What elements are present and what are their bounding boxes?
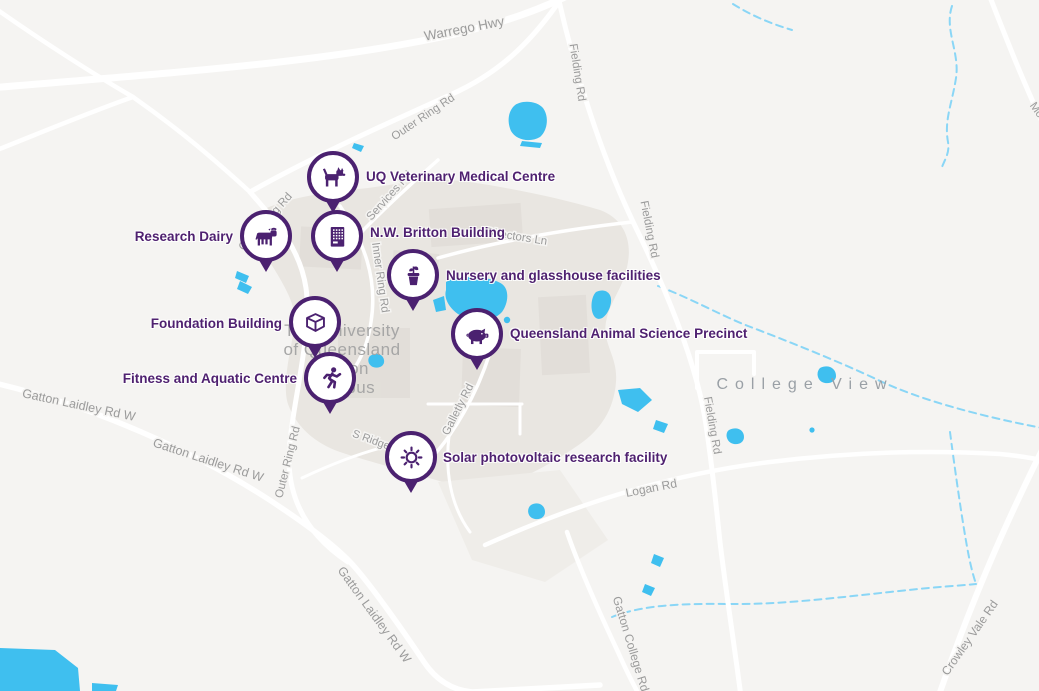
- marker-fitness-and-aquatic-centre[interactable]: [304, 352, 356, 404]
- marker-label-solar-photovoltaic-research-facility: Solar photovoltaic research facility: [443, 449, 667, 467]
- sun-icon: [398, 444, 425, 471]
- cow-icon: [253, 223, 280, 250]
- map-canvas[interactable]: Warrego Hwy Fielding Rd Outer Ring Rd Ou…: [0, 0, 1039, 691]
- marker-solar-photovoltaic-research-facility[interactable]: [385, 431, 437, 483]
- pig-icon: [464, 321, 491, 348]
- marker-label-nw-britton-building: N.W. Britton Building: [370, 224, 505, 242]
- marker-label-foundation-building: Foundation Building: [151, 315, 282, 333]
- marker-uq-veterinary-medical-centre[interactable]: [307, 151, 359, 203]
- plant-pot-icon: [400, 262, 427, 289]
- marker-label-queensland-animal-science-precinct: Queensland Animal Science Precinct: [510, 325, 747, 343]
- marker-nursery-and-glasshouse-facilities[interactable]: [387, 249, 439, 301]
- marker-label-research-dairy: Research Dairy: [135, 228, 233, 246]
- marker-label-uq-veterinary-medical-centre: UQ Veterinary Medical Centre: [366, 168, 555, 186]
- runner-icon: [317, 365, 344, 392]
- dog-icon: [320, 164, 347, 191]
- marker-queensland-animal-science-precinct[interactable]: [451, 308, 503, 360]
- building-icon: [324, 223, 351, 250]
- marker-research-dairy[interactable]: [240, 210, 292, 262]
- marker-label-nursery-and-glasshouse-facilities: Nursery and glasshouse facilities: [446, 267, 661, 285]
- cube-icon: [302, 309, 329, 336]
- marker-nw-britton-building[interactable]: [311, 210, 363, 262]
- area-label-college-view: College View: [716, 376, 893, 393]
- marker-label-fitness-and-aquatic-centre: Fitness and Aquatic Centre: [123, 370, 297, 388]
- campus-map[interactable]: Warrego Hwy Fielding Rd Outer Ring Rd Ou…: [0, 0, 1039, 691]
- marker-foundation-building[interactable]: [289, 296, 341, 348]
